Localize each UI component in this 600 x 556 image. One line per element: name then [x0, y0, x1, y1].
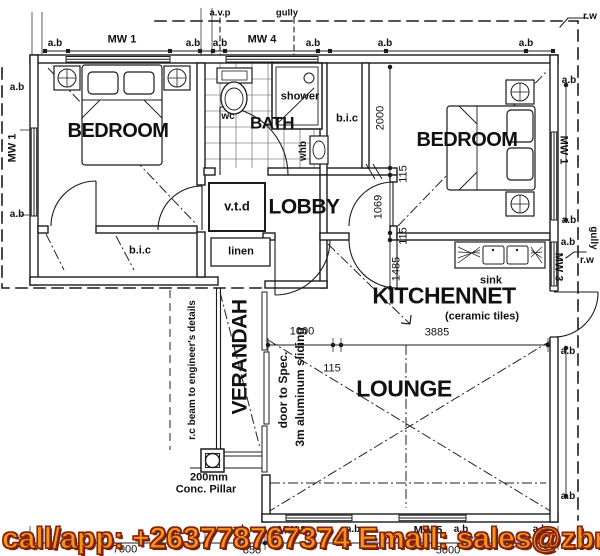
- floorplan-drawing: [0, 0, 600, 556]
- rainwater-label-corner: r.w: [583, 12, 597, 22]
- fixture-label-shower: shower: [281, 92, 320, 103]
- airbrick-label: a.b: [378, 39, 392, 49]
- fixture-label-bic-left: b.i.c: [129, 246, 151, 257]
- window-label-mw1-left: MW 1: [8, 134, 19, 163]
- rainwater-label: r.w: [580, 256, 594, 266]
- room-label-bedroom-2: BEDROOM: [417, 130, 518, 150]
- avp-label: a.v.p: [210, 8, 231, 18]
- airbrick-label: a.b: [562, 76, 576, 86]
- fixture-label-wc: wc: [221, 112, 234, 122]
- dim-1485: 1485: [392, 257, 403, 281]
- dim-115-c: 115: [323, 364, 341, 375]
- gully-label-right: gully: [588, 226, 598, 249]
- dim-1069: 1069: [374, 195, 385, 219]
- dim-2000: 2000: [376, 106, 387, 130]
- window-label-mw4-top: MW 4: [248, 35, 277, 46]
- floor-plan: a.v.p gully r.w a.b MW 1 a.b a.b MW 4 a.…: [0, 0, 600, 556]
- room-label-bedroom-1: BEDROOM: [68, 121, 169, 141]
- room-label-kitchennet: KITCHENNET: [372, 285, 515, 308]
- dim-3885: 3885: [425, 328, 449, 339]
- dim-115-b: 115: [399, 227, 410, 245]
- kitchennet-note: (ceramic tiles): [445, 312, 519, 323]
- airbrick-label: a.b: [186, 39, 200, 49]
- note-door-spec: door to Spec.: [277, 352, 289, 429]
- airbrick-label: a.b: [561, 238, 575, 248]
- note-pillar-size: 200mm: [190, 473, 228, 484]
- note-door-sliding: 3m aluminum sliding: [294, 327, 306, 446]
- room-label-lounge: LOUNGE: [356, 378, 451, 401]
- airbrick-label: a.b: [561, 347, 575, 357]
- room-label-lobby: LOBBY: [269, 197, 340, 218]
- window-label-mw1-top: MW 1: [108, 35, 137, 46]
- fixture-label-whb: whb: [299, 141, 309, 161]
- gully-label-top: gully: [276, 8, 298, 18]
- airbrick-label: a.b: [562, 216, 576, 226]
- airbrick-label: a.b: [213, 39, 227, 49]
- airbrick-label: a.b: [306, 39, 320, 49]
- note-pillar-type: Conc. Pillar: [176, 485, 237, 496]
- fixture-label-bic-top: b.i.c: [336, 114, 358, 125]
- fixture-label-linen: linen: [228, 247, 254, 258]
- window-label-mw3-right: MW 3: [553, 253, 564, 282]
- dim-115-a: 115: [399, 165, 410, 183]
- contact-banner: call/app: +263778767374 Email: sales@zbr: [2, 522, 600, 556]
- airbrick-label: a.b: [561, 492, 575, 502]
- airbrick-label: a.b: [519, 39, 533, 49]
- window-label-mw1-right: MW 1: [558, 136, 569, 165]
- room-label-verandah: VERANDAH: [230, 299, 251, 414]
- note-rc-beam: r.c beam to engineer's details: [188, 300, 198, 440]
- airbrick-label: a.b: [10, 83, 24, 93]
- fixture-label-vtd: v.t.d: [224, 200, 250, 213]
- airbrick-label: a.b: [48, 39, 62, 49]
- airbrick-label: a.b: [10, 210, 24, 220]
- room-label-bath: BATH: [250, 115, 294, 132]
